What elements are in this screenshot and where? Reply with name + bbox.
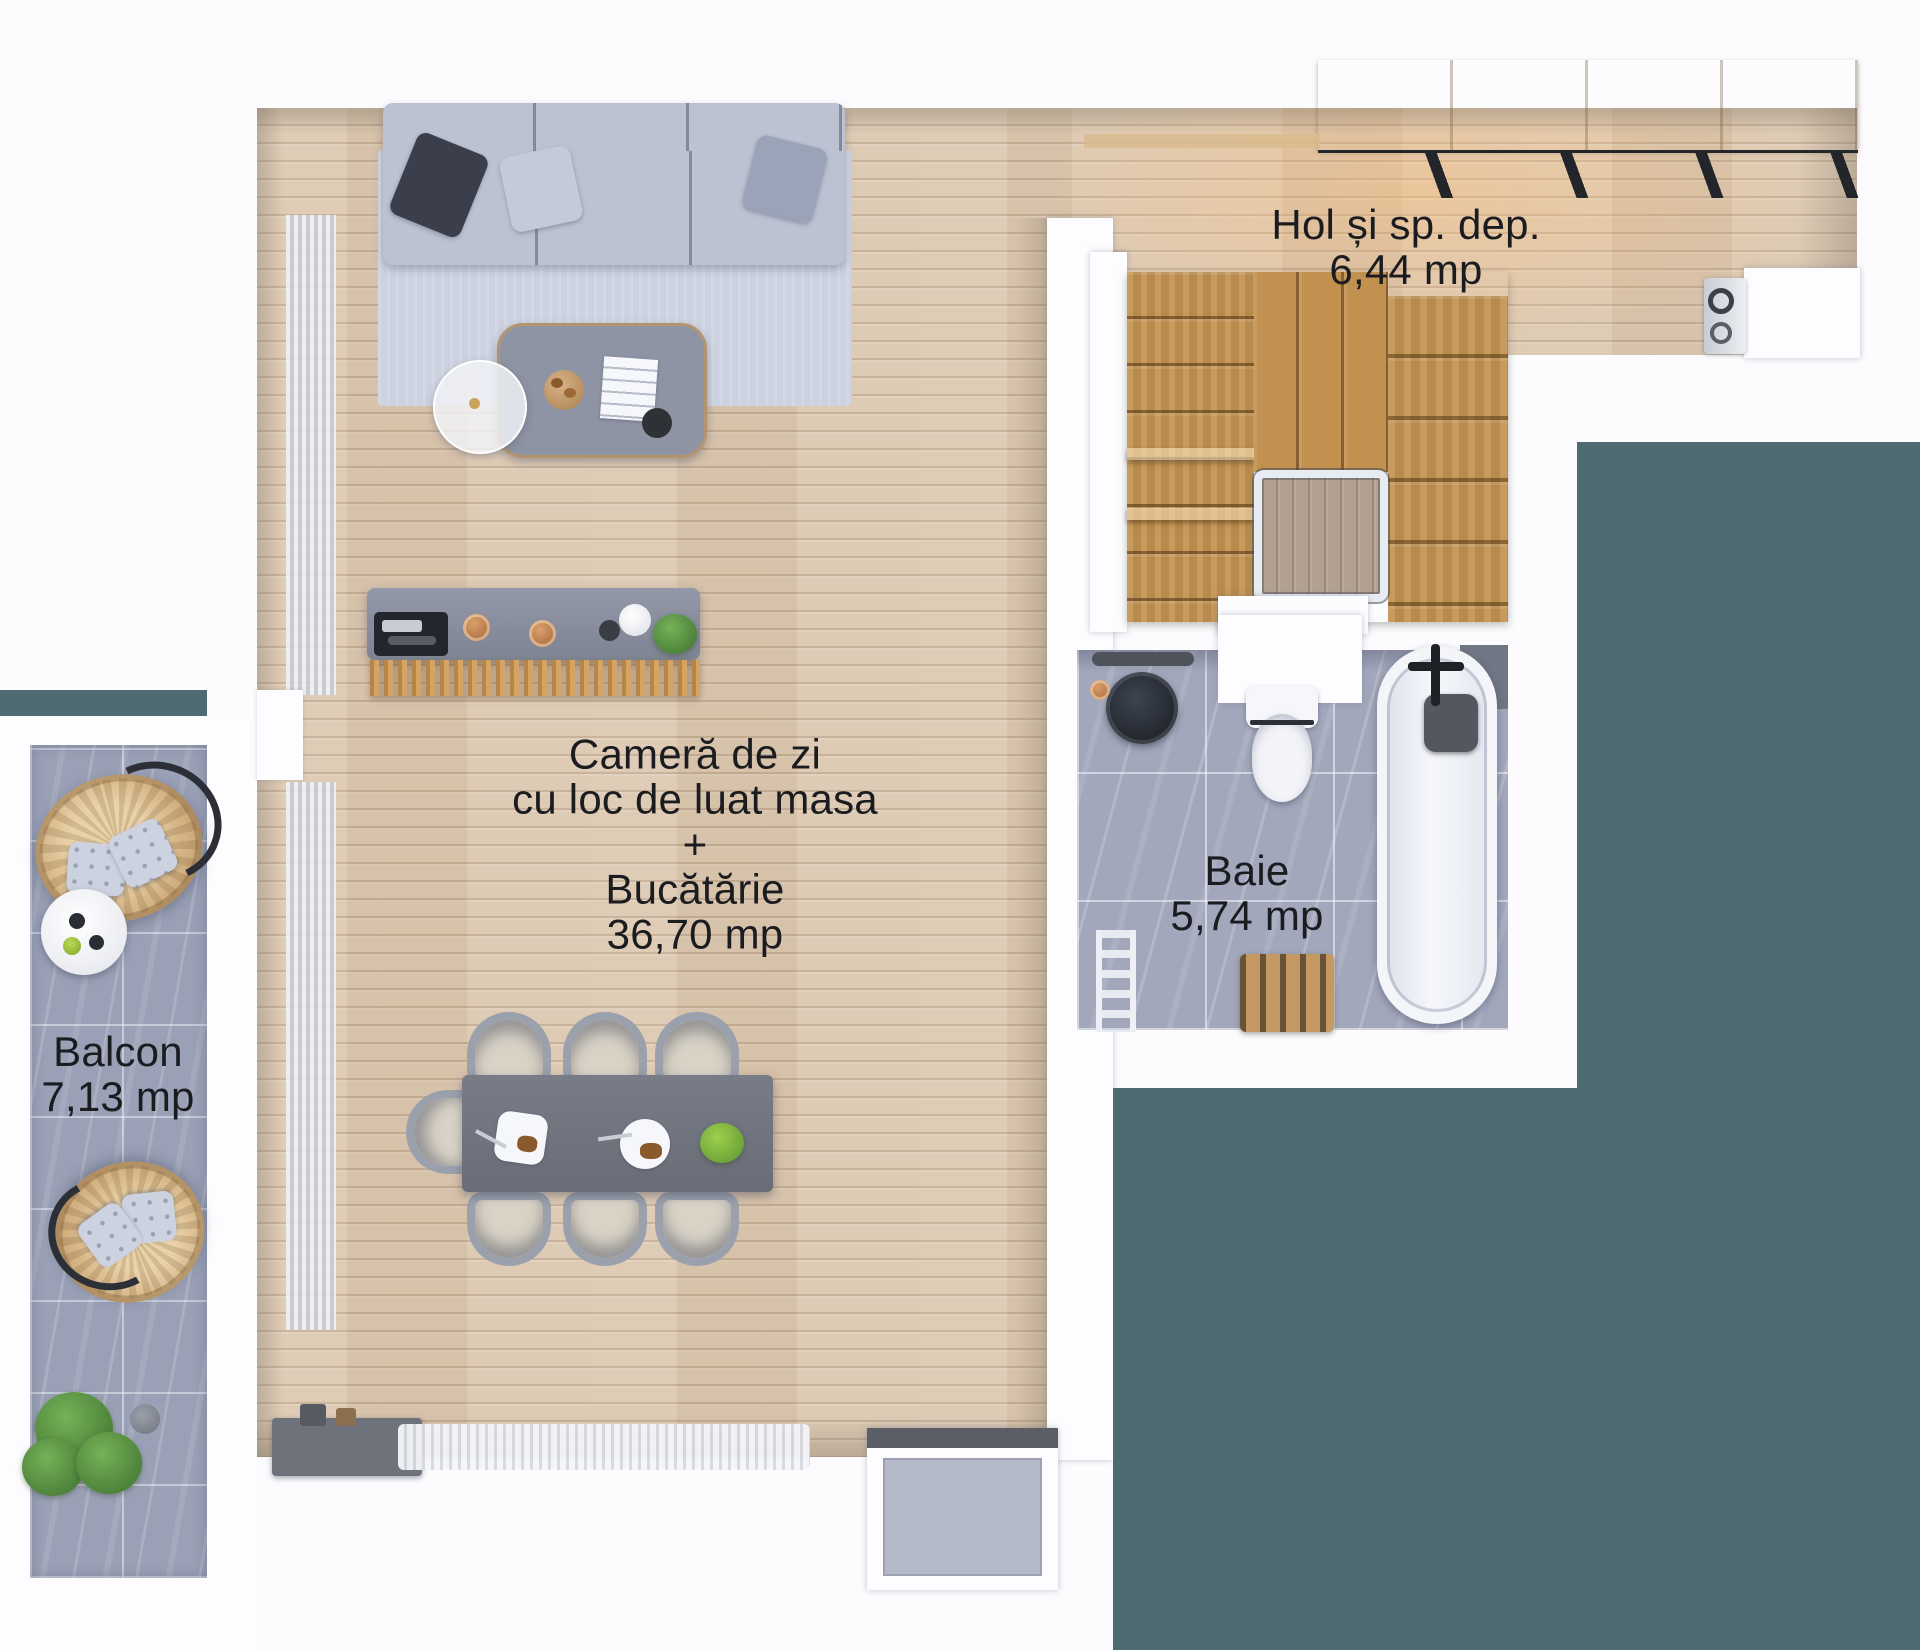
staircase bbox=[1127, 272, 1508, 622]
toilet-bowl bbox=[1252, 714, 1312, 802]
backdrop-right bbox=[1577, 442, 1920, 1650]
sofa-pillow-light bbox=[498, 144, 584, 233]
balcony-plant-leaf bbox=[76, 1432, 142, 1494]
room-label-balcony: Balcon 7,13 mp bbox=[41, 1030, 194, 1120]
bath-counter-ledge bbox=[1092, 652, 1194, 666]
coffee-machine bbox=[374, 612, 448, 656]
black-bowl bbox=[642, 408, 672, 438]
croissant-icon bbox=[551, 378, 563, 388]
fringe-rug bbox=[398, 1424, 810, 1470]
window-pillar bbox=[257, 690, 303, 780]
wardrobe bbox=[1318, 60, 1858, 150]
room-label-living: Cameră de zi cu loc de luat masa + Bucăt… bbox=[512, 733, 878, 958]
table-plant bbox=[700, 1123, 744, 1163]
washing-machine bbox=[1704, 278, 1746, 354]
kitchen-bar-counter bbox=[367, 588, 700, 660]
planter-pot bbox=[130, 1404, 160, 1434]
stairs-left-flight bbox=[1127, 272, 1254, 622]
ac-platform bbox=[867, 1428, 1058, 1590]
bar-plant bbox=[653, 614, 697, 654]
copper-canister bbox=[463, 614, 490, 641]
room-label-bath: Baie 5,74 mp bbox=[1170, 849, 1323, 939]
room-name-line2: cu loc de luat masa bbox=[512, 778, 878, 823]
room-name: Baie bbox=[1170, 849, 1323, 894]
grinder bbox=[599, 620, 620, 641]
floor-plan: Hol și sp. dep. 6,44 mp Cameră de zi cu … bbox=[0, 0, 1920, 1650]
coffee-table bbox=[497, 323, 707, 458]
balcony-plant-leaf bbox=[22, 1438, 84, 1496]
backdrop-bottom-right bbox=[1113, 1088, 1577, 1650]
ac-platform-top-edge bbox=[867, 1428, 1058, 1448]
sofa bbox=[383, 103, 845, 265]
room-area: 6,44 mp bbox=[1271, 248, 1540, 293]
food-icon bbox=[516, 1135, 538, 1154]
sofa-seat-seam bbox=[689, 151, 692, 265]
curtains-upper bbox=[286, 215, 336, 695]
white-bowl bbox=[619, 604, 651, 636]
cup-icon bbox=[89, 935, 104, 950]
room-area: 7,13 mp bbox=[41, 1075, 194, 1120]
washer-niche-wall bbox=[1744, 268, 1860, 358]
towel-ladder bbox=[1096, 930, 1136, 1032]
cup-icon bbox=[69, 913, 85, 929]
apple-icon bbox=[63, 937, 81, 955]
stairs-landing bbox=[1254, 470, 1388, 602]
coffee-machine-handle bbox=[388, 636, 436, 645]
sink-faucet-brass bbox=[1090, 680, 1110, 700]
wardrobe-glass-doors bbox=[1318, 150, 1858, 198]
room-area: 5,74 mp bbox=[1170, 894, 1323, 939]
tub-faucet-stem bbox=[1431, 644, 1440, 706]
food-icon bbox=[640, 1143, 662, 1159]
plus-sign: + bbox=[512, 823, 878, 868]
storage-crate bbox=[1240, 954, 1334, 1032]
curtains-lower bbox=[286, 782, 336, 1330]
dining-table bbox=[462, 1075, 773, 1192]
washer-door-icon-2 bbox=[1710, 322, 1732, 344]
bar-slats bbox=[370, 660, 700, 696]
sideboard-item bbox=[300, 1404, 326, 1426]
room-label-hall: Hol și sp. dep. 6,44 mp bbox=[1271, 203, 1540, 293]
room-area: 36,70 mp bbox=[512, 912, 878, 957]
coffee-machine-metal bbox=[382, 620, 422, 632]
wardrobe-side-shelf bbox=[1084, 134, 1320, 148]
croissant-icon bbox=[564, 388, 576, 398]
copper-canister bbox=[529, 620, 556, 647]
gold-dot bbox=[469, 398, 480, 409]
sideboard-item bbox=[336, 1408, 356, 1426]
backdrop-strip-above-balcony bbox=[0, 690, 207, 716]
wall-stairs-left bbox=[1090, 252, 1127, 632]
toilet-seat-hinge bbox=[1250, 720, 1314, 725]
stairs-right-flight bbox=[1388, 296, 1508, 622]
washer-door-icon bbox=[1708, 288, 1734, 314]
stairs-top-flight bbox=[1254, 272, 1388, 472]
plate-setting bbox=[620, 1119, 670, 1169]
balcony-table bbox=[41, 889, 127, 975]
room-name: Balcon bbox=[41, 1030, 194, 1075]
room-name-line3: Bucătărie bbox=[512, 867, 878, 912]
plate-setting bbox=[493, 1110, 549, 1166]
frosted-side-table bbox=[433, 360, 527, 454]
room-name: Hol și sp. dep. bbox=[1271, 203, 1540, 248]
vessel-sink bbox=[1106, 672, 1178, 744]
serving-tray bbox=[544, 370, 584, 410]
ac-platform-panel bbox=[883, 1458, 1042, 1576]
room-name: Cameră de zi bbox=[512, 733, 878, 778]
